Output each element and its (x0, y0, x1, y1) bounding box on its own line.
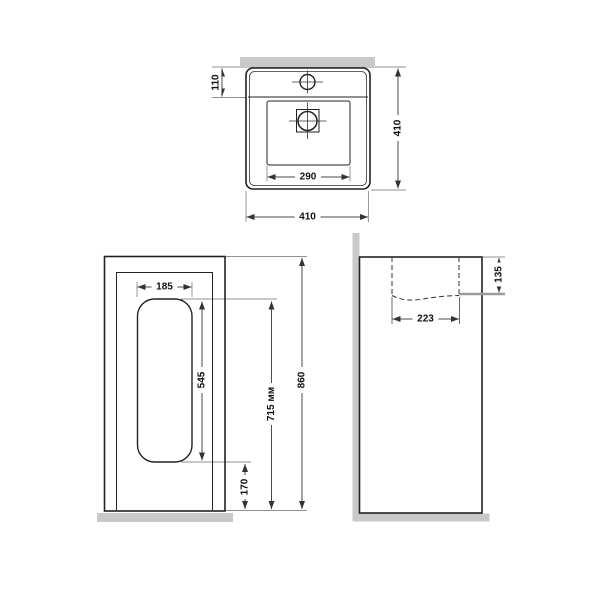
dim-label: 410 (299, 212, 316, 223)
dim-recess-height: 545 (197, 302, 208, 461)
dim-label: 860 (297, 371, 308, 388)
dim-label: 545 (197, 371, 208, 388)
dim-label: 410 (393, 119, 404, 136)
dim-label: 715 мм (266, 387, 277, 421)
faucet-hole-icon (292, 71, 323, 94)
dim-bowl-depth: 135 (494, 258, 505, 293)
dim-recess-width: 185 (138, 282, 192, 293)
wall-surface-bar (353, 233, 360, 521)
dim-label: 135 (494, 266, 505, 283)
side-view: 135 223 (353, 233, 506, 522)
dim-bowl-inner-length: 223 (393, 314, 460, 325)
front-view: 185 545 170 715 мм (97, 257, 308, 523)
wall-surface-bar (240, 57, 375, 66)
dim-label: 185 (156, 282, 173, 293)
hidden-bowl-bottom-line (392, 296, 459, 301)
dim-overall-height: 860 (297, 258, 308, 509)
floor-surface-bar (353, 514, 490, 522)
dim-tap-deck-depth: 110 (211, 69, 223, 97)
dim-label: 290 (300, 172, 317, 183)
top-view: 110 410 290 410 (211, 57, 407, 223)
dim-recess-top-from-floor: 715 мм (266, 302, 277, 510)
bowl-outline (267, 101, 350, 165)
dim-overall-width: 410 (247, 212, 369, 223)
dim-label: 223 (417, 314, 434, 325)
drain-icon (289, 103, 327, 140)
washbasin-technical-drawing: 110 410 290 410 (0, 0, 600, 600)
side-outline (360, 257, 483, 513)
floor-surface-bar (97, 513, 233, 522)
dim-recess-floor-gap: 170 (240, 464, 251, 509)
dim-label: 110 (211, 74, 222, 91)
dim-overall-depth: 410 (393, 69, 404, 189)
dim-label: 170 (240, 478, 251, 495)
dim-bowl-width: 290 (268, 172, 350, 183)
technical-drawing-page: 110 410 290 410 (0, 0, 600, 600)
pedestal-recess (138, 299, 193, 462)
